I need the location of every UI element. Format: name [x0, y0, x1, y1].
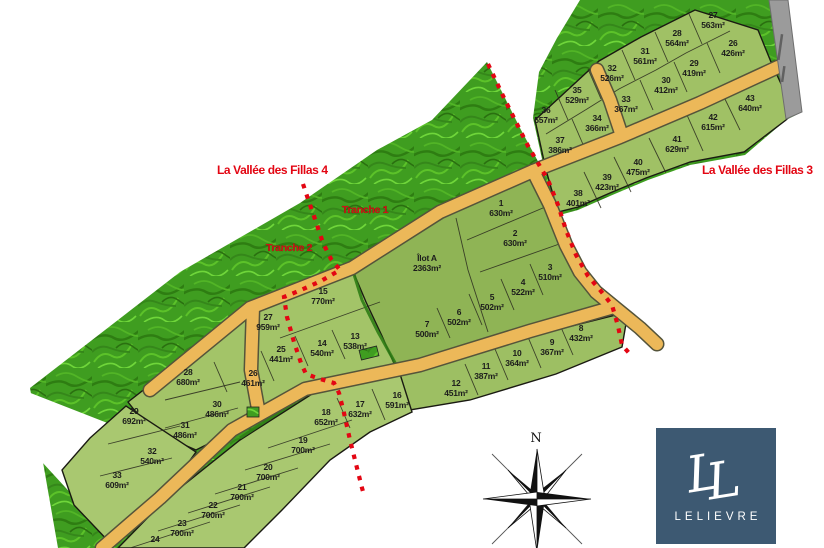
lot-area: 630m² — [489, 208, 513, 218]
lot-number: 19 — [298, 435, 308, 445]
lot-area: 959m² — [256, 322, 280, 332]
lot-number: 30 — [212, 399, 222, 409]
lot-area: 486m² — [205, 409, 229, 419]
lot-number: 23 — [177, 518, 187, 528]
lot-area: 540m² — [310, 348, 334, 358]
lot-area: 564m² — [665, 38, 689, 48]
lot-number: 24 — [150, 534, 160, 544]
lot-area: 640m² — [738, 103, 762, 113]
lot-number: 33 — [621, 94, 631, 104]
lot-area: 441m² — [269, 354, 293, 364]
lot-area: 630m² — [503, 238, 527, 248]
lot-area: 700m² — [256, 472, 280, 482]
lot-area: 529m² — [565, 95, 589, 105]
lot-number: Îlot A — [416, 252, 437, 263]
lot-number: 29 — [689, 58, 699, 68]
lot-area: 401m² — [566, 198, 590, 208]
lot-number: 5 — [490, 292, 495, 302]
lot-area: 387m² — [474, 371, 498, 381]
subdivision-map: La Vallée des Fillas 4 La Vallée des Fil… — [0, 0, 824, 548]
lot-number: 35 — [572, 85, 582, 95]
lot-number: 25 — [276, 344, 286, 354]
lot-area: 700m² — [170, 528, 194, 538]
lot-area: 366m² — [585, 123, 609, 133]
lot-area: 451m² — [444, 388, 468, 398]
lot-number: 26 — [728, 38, 738, 48]
lot-area: 412m² — [654, 85, 678, 95]
lot-number: 37 — [555, 135, 565, 145]
lot-area: 700m² — [201, 510, 225, 520]
lot-number: 28 — [672, 28, 682, 38]
lot-area: 502m² — [447, 317, 471, 327]
lot-number: 30 — [661, 75, 671, 85]
label-fillas4: La Vallée des Fillas 4 — [217, 163, 328, 177]
lot-number: 28 — [183, 367, 193, 377]
lot-area: 540m² — [140, 456, 164, 466]
compass-north-label: N — [530, 431, 541, 446]
lot-area: 502m² — [480, 302, 504, 312]
lot-area: 2363m² — [413, 263, 441, 273]
lot-area: 526m² — [600, 73, 624, 83]
lot-area: 486m² — [173, 430, 197, 440]
lot-number: 14 — [317, 338, 327, 348]
lot-area: 680m² — [176, 377, 200, 387]
lot-area: 423m² — [595, 182, 619, 192]
lot-number: 40 — [633, 157, 643, 167]
lot-number: 31 — [640, 46, 650, 56]
lot-area: 432m² — [569, 333, 593, 343]
lot-number: 32 — [607, 63, 617, 73]
logo-brand-text: LELIEVRE — [675, 511, 762, 523]
lot-number: 43 — [745, 93, 755, 103]
lot-area: 632m² — [348, 409, 372, 419]
lot-number: 10 — [512, 348, 522, 358]
lot-area: 770m² — [311, 296, 335, 306]
lot-number: 20 — [263, 462, 273, 472]
lot-area: 609m² — [105, 480, 129, 490]
lot-number: 26 — [248, 368, 258, 378]
lot-number: 33 — [112, 470, 122, 480]
lot-area: 367m² — [540, 347, 564, 357]
lot-number: 27 — [263, 312, 273, 322]
lot-area: 615m² — [701, 122, 725, 132]
lot-area: 700m² — [291, 445, 315, 455]
label-tranche-1: Tranche 1 — [342, 204, 389, 216]
label-tranche-2: Tranche 2 — [266, 242, 313, 254]
lot-number: 42 — [708, 112, 718, 122]
lot-area: 557m² — [534, 115, 558, 125]
lot-area: 364m² — [505, 358, 529, 368]
lot-number: 16 — [392, 390, 402, 400]
brand-logo: L L LELIEVRE — [656, 428, 776, 544]
road-island — [247, 407, 259, 417]
lot-number: 27 — [708, 10, 718, 20]
lot-number: 11 — [482, 361, 491, 371]
lot-number: 6 — [457, 307, 462, 317]
label-fillas3: La Vallée des Fillas 3 — [702, 163, 813, 177]
lot-number: 9 — [550, 337, 555, 347]
lot-number: 1 — [499, 198, 504, 208]
lot-number: 36 — [541, 105, 551, 115]
lot-area: 629m² — [665, 144, 689, 154]
lot-number: 12 — [451, 378, 461, 388]
lot-area: 563m² — [701, 20, 725, 30]
lot-area: 461m² — [241, 378, 265, 388]
map-canvas: La Vallée des Fillas 4 La Vallée des Fil… — [0, 0, 824, 548]
lot-number: 29 — [129, 406, 139, 416]
lot-number: 7 — [425, 319, 430, 329]
lot-number: 8 — [579, 323, 584, 333]
lot-number: 3 — [548, 262, 553, 272]
lot-area: 426m² — [721, 48, 745, 58]
lot-number: 34 — [592, 113, 602, 123]
lot-area: 475m² — [626, 167, 650, 177]
lot-area: 367m² — [614, 104, 638, 114]
lot-number: 2 — [513, 228, 518, 238]
lot-number: 38 — [573, 188, 583, 198]
lot-number: 15 — [318, 286, 328, 296]
lot-area: 652m² — [314, 417, 338, 427]
lot-area: 522m² — [511, 287, 535, 297]
lot-area: 561m² — [633, 56, 657, 66]
lot-number: 21 — [237, 482, 247, 492]
lot-area: 510m² — [538, 272, 562, 282]
lot-area: 419m² — [682, 68, 706, 78]
lot-number: 31 — [180, 420, 190, 430]
lot-area: 500m² — [415, 329, 439, 339]
lot-area: 700m² — [230, 492, 254, 502]
compass-rose: N — [483, 431, 591, 548]
lot-number: 4 — [521, 277, 526, 287]
lot-number: 22 — [208, 500, 218, 510]
lot-number: 18 — [321, 407, 331, 417]
lot-area: 538m² — [343, 341, 367, 351]
lot-number: 32 — [147, 446, 157, 456]
lot-number: 39 — [602, 172, 612, 182]
lot-number: 41 — [672, 134, 682, 144]
lot-number: 17 — [355, 399, 365, 409]
lot-area: 591m² — [385, 400, 409, 410]
lot-area: 692m² — [122, 416, 146, 426]
lot-number: 13 — [350, 331, 360, 341]
lot-area: 386m² — [548, 145, 572, 155]
